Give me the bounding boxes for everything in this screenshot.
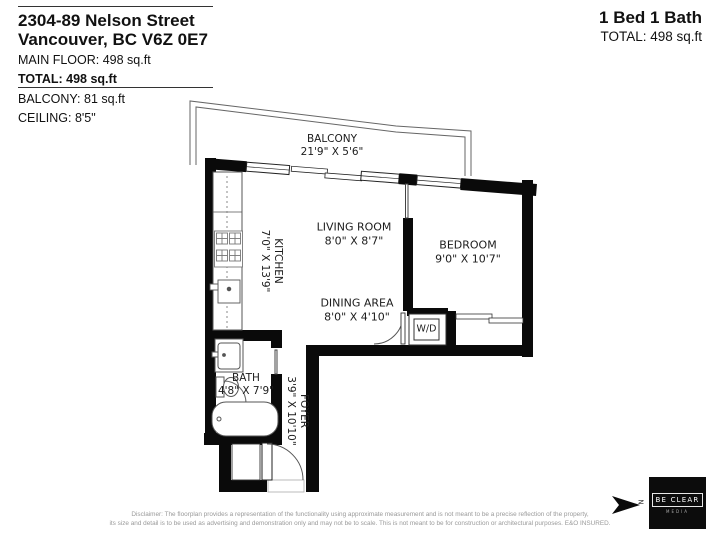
stove-icon [215,231,243,267]
entry-nook-wall [219,445,231,485]
door-leaf [401,313,405,344]
bath-vanity-icon [212,339,243,372]
bedroom-west-wall [403,218,413,311]
bottom-wall [219,480,267,492]
north-letter: N [637,499,645,504]
balcony-label: BALCONY 21'9" X 5'6" [301,133,364,159]
bath-opening-jamb [275,350,277,374]
entry-door-leaf [262,443,272,480]
logo-text: BE CLEAR [652,493,704,507]
bathtub-icon [212,402,278,436]
floorplan-page: 2304-89 Nelson Street Vancouver, BC V6Z … [0,0,720,540]
bath-label: BATH 4'8" X 7'9" [218,372,274,398]
kitchen-fixtures [210,172,243,330]
north-indicator: N [608,492,652,518]
disclaimer-line2: its size and detail is to be used as adv… [0,520,720,529]
logo-subtext: MEDIA [666,509,689,514]
floorplan-drawing [0,0,720,540]
wd-side-wall [445,311,456,347]
living-bottom-wall [306,345,533,356]
entry-threshold [268,480,304,492]
window [417,176,462,188]
top-wall [205,158,537,196]
foyer-label: FOYER 3'9" X 10'10" [284,376,310,445]
exterior-walls [204,158,533,492]
bedroom-closet-doors [456,314,523,323]
bedroom-label: BEDROOM 9'0" X 10'7" [435,239,501,266]
sliding-door [291,166,362,181]
bath-wall-upper [271,341,282,348]
window [361,171,400,183]
be-clear-media-logo: BE CLEAR MEDIA [649,477,706,529]
bedroom-right-wall [522,180,533,357]
living-room-label: LIVING ROOM 8'0" X 8'7" [317,221,392,248]
window [246,162,290,174]
dining-area-label: DINING AREA 8'0" X 4'10" [320,297,393,324]
kitchen-label: KITCHEN 7'0" X 13'9" [258,230,284,293]
entry-closet [232,444,260,480]
wd-label: W/D [417,324,437,335]
bedroom-opening-jamb [406,184,409,218]
